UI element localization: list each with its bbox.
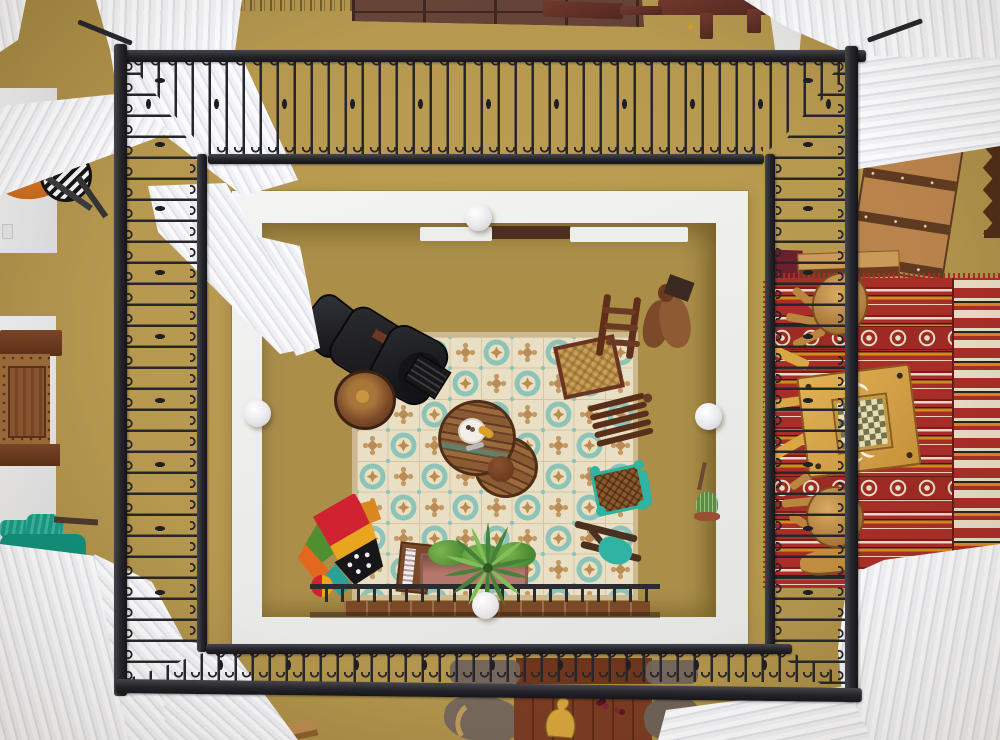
stool-carving xyxy=(356,390,369,403)
railing-twist-knots xyxy=(152,70,168,640)
brass-hinge xyxy=(688,24,693,29)
globe-lamp-bottom xyxy=(472,592,499,619)
dark-wood-beam xyxy=(492,226,570,239)
rug-border-column xyxy=(952,278,1000,588)
lower-wood-table xyxy=(514,694,652,740)
wood-bench-apron xyxy=(620,6,662,15)
turquoise-chair-leg xyxy=(596,506,606,516)
turquoise-chair-leg xyxy=(634,460,644,470)
globe-lamp-left xyxy=(244,400,271,427)
bracket-rail xyxy=(984,230,1000,238)
patchwork-pouf xyxy=(298,494,410,598)
round-cushion xyxy=(488,456,514,482)
leather-strap xyxy=(452,697,502,740)
zigzag-shelf-bracket xyxy=(978,142,1000,234)
globe-lamp-right xyxy=(695,403,722,430)
light-switch xyxy=(2,224,13,239)
table-bolt xyxy=(906,452,913,459)
railing-handrail xyxy=(114,44,127,696)
courtyard-overhead-photo: Overhead view straight down into a colon… xyxy=(0,0,1000,740)
railing-handrail xyxy=(118,50,866,62)
railing-scrolls xyxy=(127,56,135,684)
globe-lamp-top xyxy=(465,204,492,231)
railing-twist-knots xyxy=(212,658,788,672)
berries xyxy=(614,707,620,713)
table-bolt xyxy=(896,372,903,379)
white-ledge xyxy=(570,227,688,242)
wood-bench-leg xyxy=(747,9,761,33)
cabinet-wood-panel xyxy=(8,366,46,438)
railing-twist-knots xyxy=(140,96,840,112)
railing-scrolls xyxy=(776,158,784,644)
berries xyxy=(596,700,603,706)
wood-bench-rail xyxy=(543,1,624,20)
cabinet-crown-molding xyxy=(0,330,62,356)
plate-food xyxy=(466,425,471,430)
wood-bench-leg xyxy=(700,13,713,39)
railing-bottom-rail xyxy=(197,154,207,652)
duck-body xyxy=(546,698,575,738)
railing-handrail xyxy=(845,46,858,702)
railing-twist-knots xyxy=(800,70,816,650)
cabinet-bottom-rail xyxy=(0,444,60,466)
railing-bottom-rail xyxy=(206,644,792,654)
railing-bottom-rail xyxy=(208,154,764,164)
suede-chair xyxy=(441,691,525,740)
railing-scrolls xyxy=(170,672,830,680)
carved-duck-figure xyxy=(538,694,582,740)
turquoise-chair-leg xyxy=(590,466,600,476)
railing-bottom-rail xyxy=(765,154,775,654)
cactus-pot xyxy=(694,512,720,521)
